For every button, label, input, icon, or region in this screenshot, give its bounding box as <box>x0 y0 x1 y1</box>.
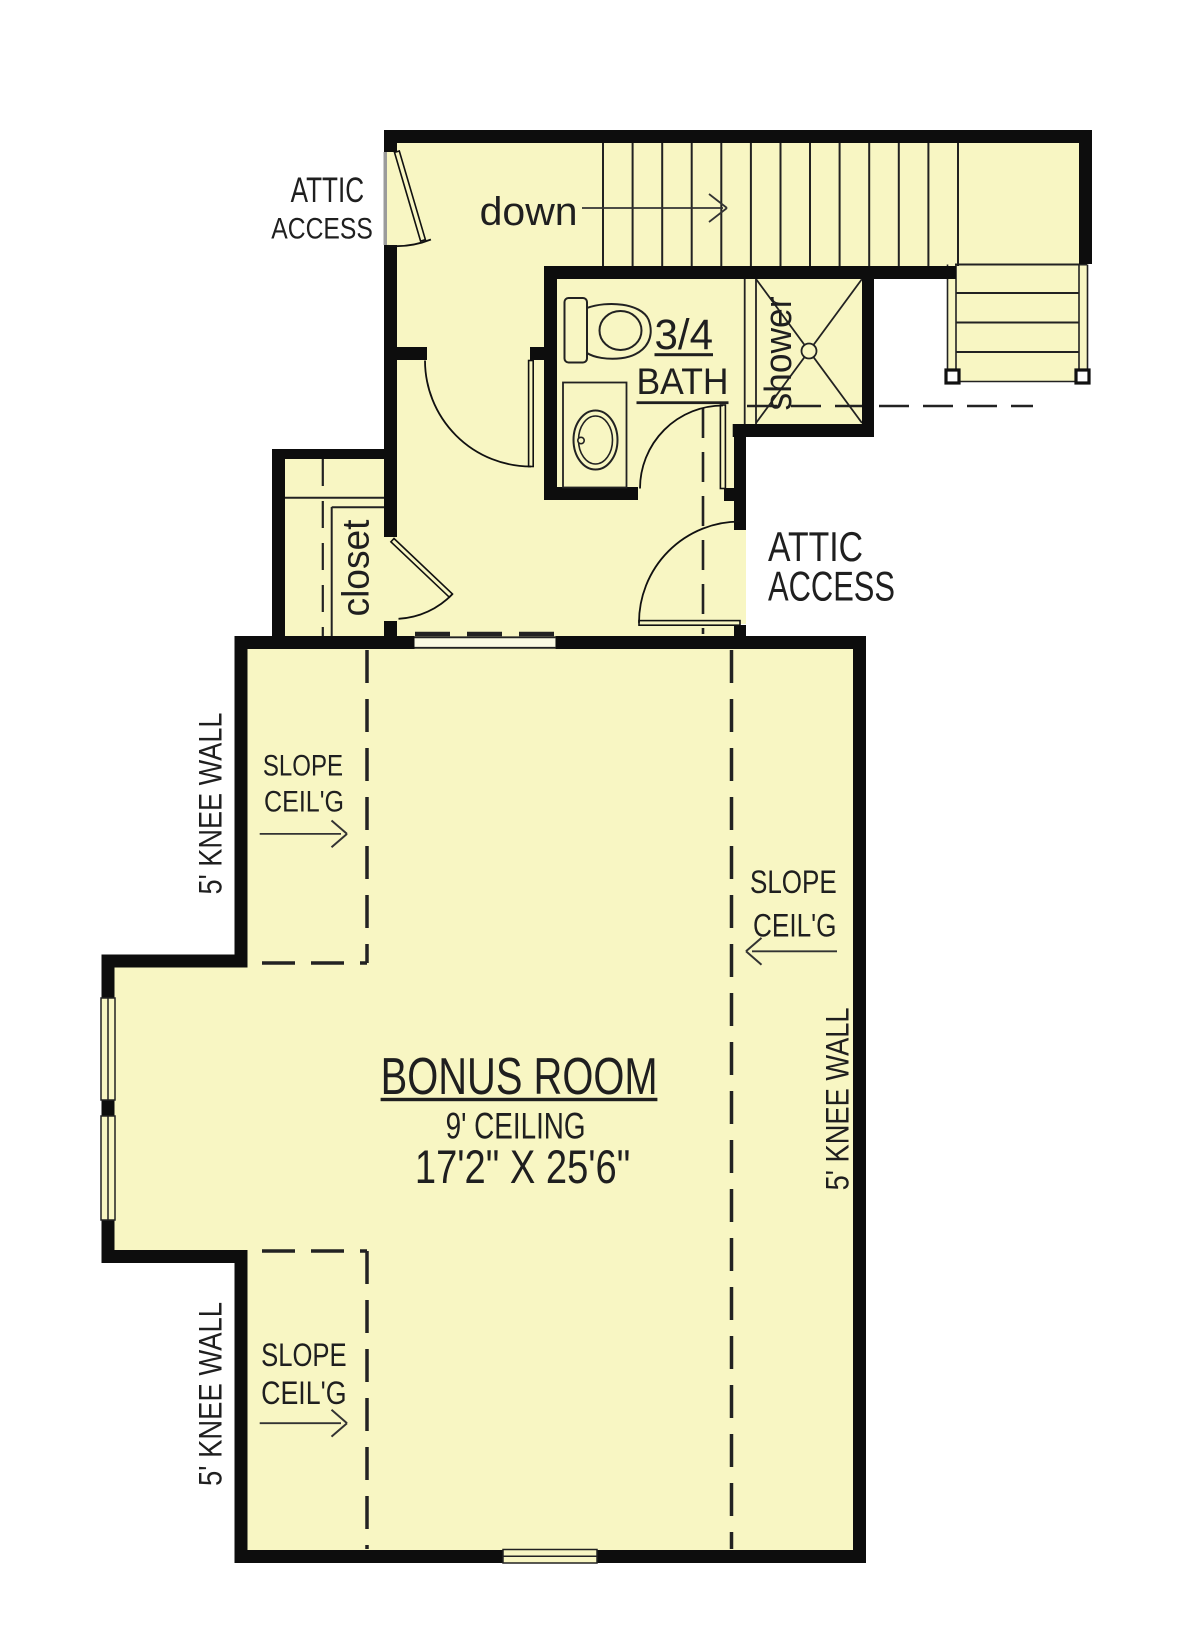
svg-text:17'2" X 25'6": 17'2" X 25'6" <box>415 1140 630 1193</box>
svg-text:shower: shower <box>758 296 800 410</box>
svg-text:closet: closet <box>336 519 378 616</box>
svg-text:down: down <box>480 190 578 234</box>
svg-text:ACCESS: ACCESS <box>271 213 373 246</box>
svg-text:5' KNEE WALL: 5' KNEE WALL <box>820 1007 856 1190</box>
svg-text:SLOPE: SLOPE <box>263 749 343 782</box>
svg-text:CEIL'G: CEIL'G <box>753 908 837 944</box>
svg-text:SLOPE: SLOPE <box>750 864 837 900</box>
svg-text:3/4: 3/4 <box>655 312 714 359</box>
svg-text:ATTIC: ATTIC <box>291 171 365 210</box>
svg-text:SLOPE: SLOPE <box>261 1337 347 1373</box>
svg-text:ACCESS: ACCESS <box>768 562 895 609</box>
svg-text:BONUS ROOM: BONUS ROOM <box>381 1047 658 1105</box>
svg-text:5' KNEE WALL: 5' KNEE WALL <box>193 1302 229 1486</box>
svg-text:5' KNEE WALL: 5' KNEE WALL <box>193 713 229 895</box>
svg-text:BATH: BATH <box>637 361 729 402</box>
svg-text:CEIL'G: CEIL'G <box>264 786 344 819</box>
svg-text:CEIL'G: CEIL'G <box>261 1375 347 1411</box>
